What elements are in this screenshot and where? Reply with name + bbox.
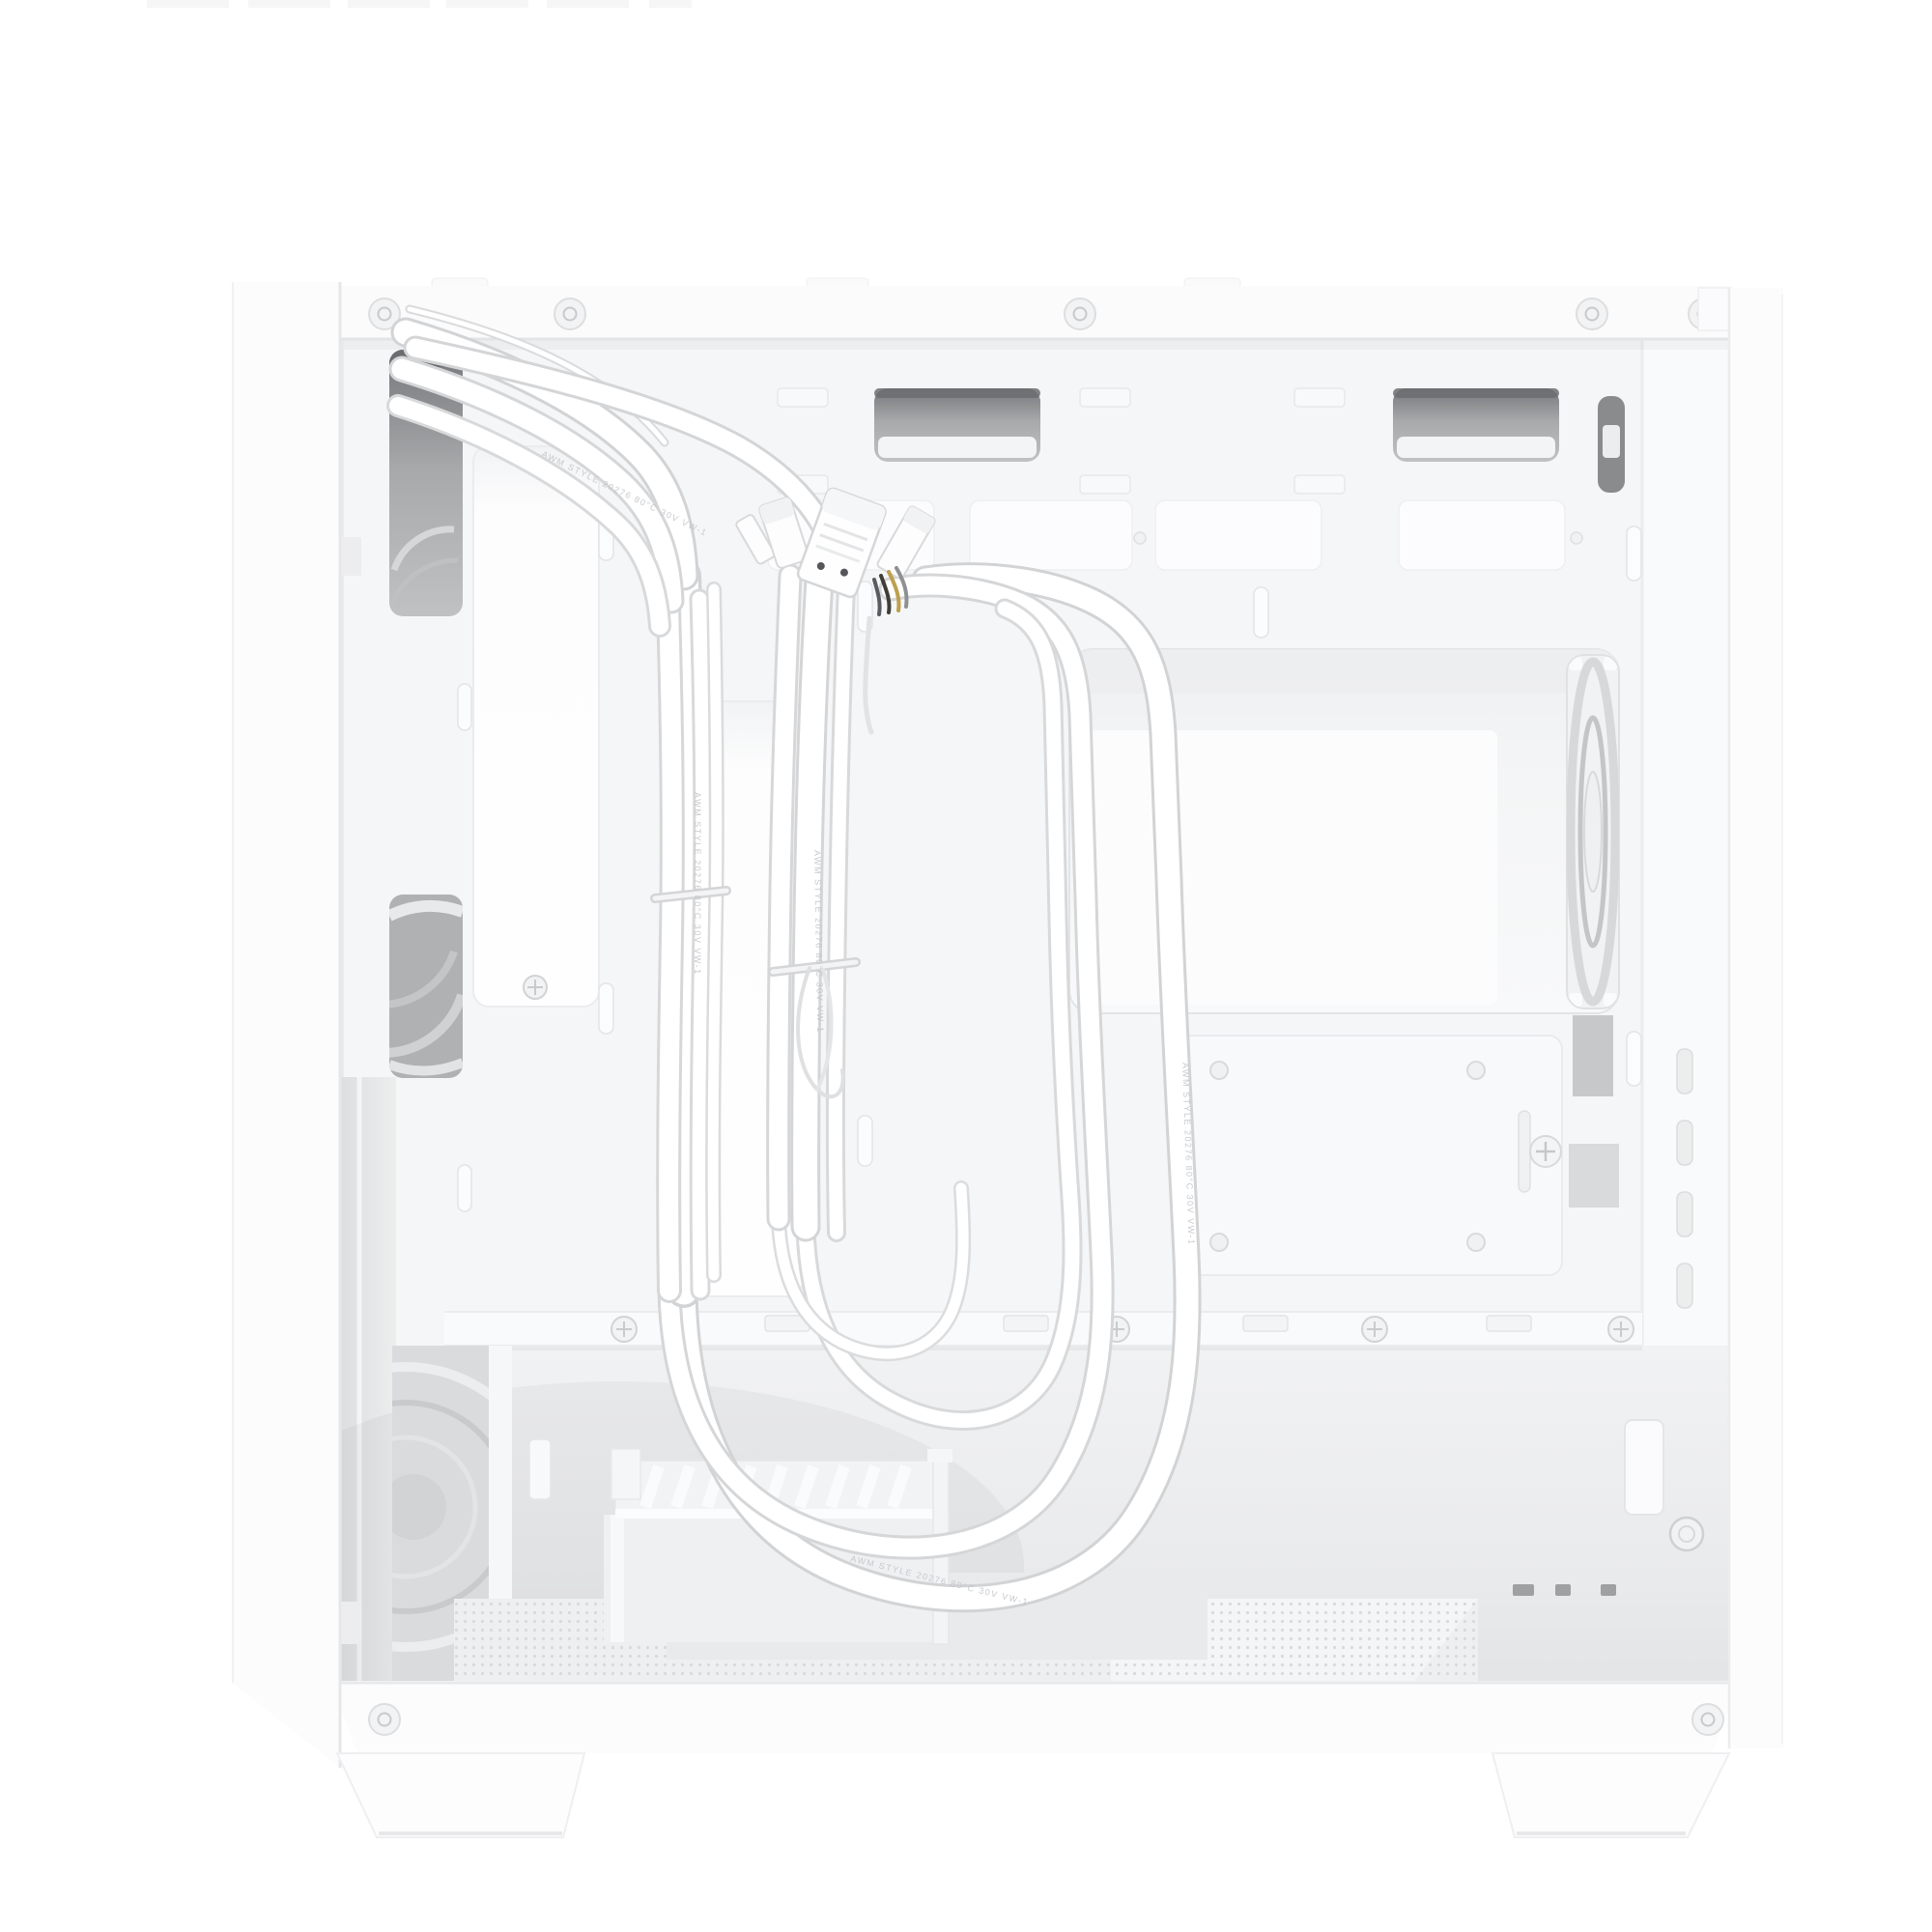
- top-cable-grommet-b: [1393, 388, 1559, 462]
- front-cable-recess: [473, 446, 599, 1007]
- screw: [524, 976, 547, 999]
- peg: [1571, 532, 1582, 544]
- top-frame-rail: [340, 278, 1729, 340]
- rail-shadow: [340, 340, 1729, 350]
- pc-case: AWM STYLE 20276 80°C 30V VW-1 AWM STYLE …: [213, 278, 1783, 1837]
- case-foot-right: [1492, 1753, 1729, 1837]
- case-foot-left: [337, 1753, 584, 1837]
- cable-bundle-main: [668, 576, 717, 1291]
- svg-text:AWM STYLE 20276 80°C 30V VW-1: AWM STYLE 20276 80°C 30V VW-1: [693, 792, 702, 976]
- product-photo-canvas: AWM STYLE 20276 80°C 30V VW-1 AWM STYLE …: [0, 0, 1932, 1932]
- top-cable-grommet-a: [874, 388, 1040, 462]
- tray-bottom-band: [444, 1312, 1642, 1350]
- rear-exhaust-fan: [1567, 655, 1619, 1096]
- thumbscrew: [1530, 1136, 1561, 1167]
- ssd-mounting-plate: [1177, 1036, 1562, 1275]
- rear-vent-notch: [1569, 1144, 1619, 1207]
- fan-mount-block: [1573, 1015, 1613, 1096]
- top-edge-artifact-tabs: [147, 0, 692, 8]
- bottom-rail: [340, 1681, 1729, 1753]
- plate-handle-slot: [1519, 1111, 1530, 1192]
- front-fan-cutout-mid: [384, 895, 463, 1078]
- cage-left-flange: [611, 1449, 640, 1499]
- psu-thumbscrew: [1670, 1518, 1703, 1550]
- cage-hook: [927, 1449, 952, 1463]
- fan-hub: [1584, 772, 1602, 892]
- peg: [1134, 532, 1146, 544]
- psu-bracket-block: [1625, 1420, 1663, 1515]
- cable-bundle-secondary: [779, 576, 846, 1233]
- top-latch-slot: [1598, 396, 1625, 493]
- bracket-tab: [529, 1439, 551, 1499]
